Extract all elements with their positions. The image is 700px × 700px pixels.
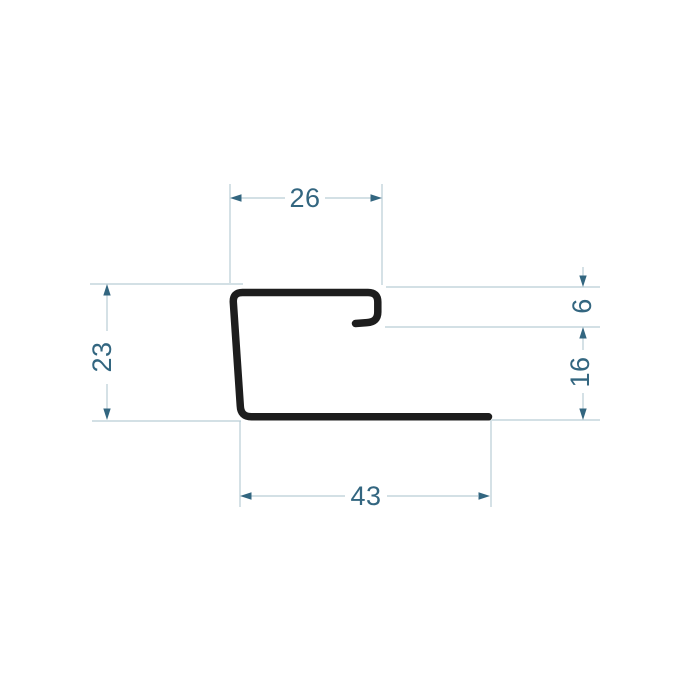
dimension-left-height: 23 (87, 284, 243, 421)
arrowhead-up-icon (579, 327, 586, 339)
dim-label-top-width: 26 (289, 183, 320, 213)
arrowhead-down-icon (103, 409, 110, 421)
dimension-top-width: 26 (230, 183, 382, 285)
dimension-bottom-width: 43 (240, 420, 491, 511)
dim-label-bottom-width: 43 (350, 481, 381, 511)
arrowhead-down-icon (579, 276, 586, 288)
technical-drawing-canvas: 26 23 6 16 (0, 0, 700, 700)
dim-label-hook-height: 6 (567, 298, 597, 314)
arrowhead-right-icon (371, 194, 383, 201)
dimension-right-height: 16 (492, 327, 600, 420)
profile-cross-section-outline (233, 293, 488, 417)
dim-label-right-height: 16 (565, 356, 595, 387)
profile-drawing: 26 23 6 16 (0, 0, 700, 700)
arrowhead-left-icon (230, 194, 242, 201)
arrowhead-down-icon (579, 409, 586, 421)
dimension-hook-height: 6 (385, 267, 600, 327)
arrowhead-right-icon (479, 492, 491, 499)
arrowhead-left-icon (240, 492, 252, 499)
arrowhead-up-icon (103, 284, 110, 296)
dim-label-left-height: 23 (87, 341, 117, 372)
